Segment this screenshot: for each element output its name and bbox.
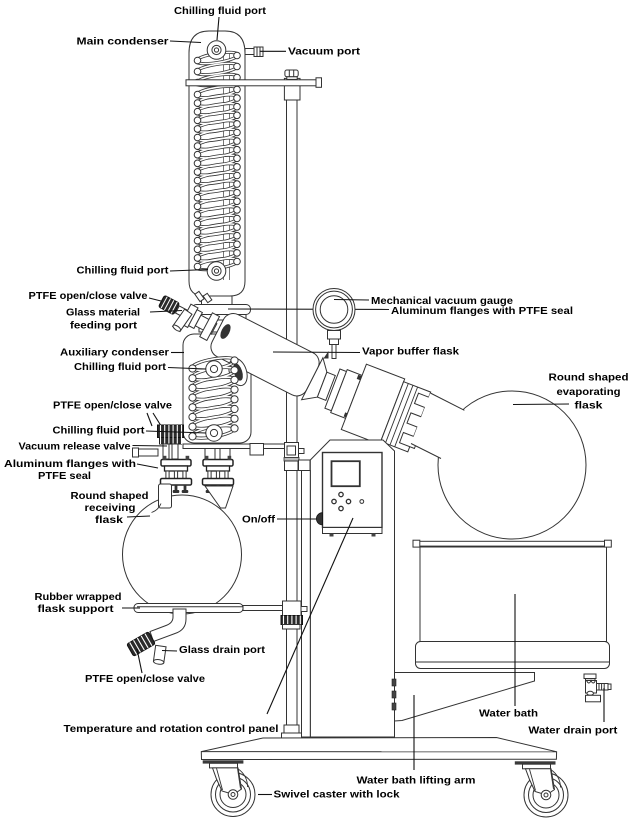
svg-text:PTFE open/close valve: PTFE open/close valve — [85, 674, 205, 685]
svg-text:Aluminum flanges with: Aluminum flanges with — [4, 459, 136, 470]
svg-text:Chilling fluid port: Chilling fluid port — [77, 266, 170, 277]
svg-text:Auxiliary condenser: Auxiliary condenser — [60, 348, 169, 359]
svg-text:PTFE open/close valve: PTFE open/close valve — [29, 291, 148, 302]
svg-text:Chilling fluid port: Chilling fluid port — [174, 6, 267, 17]
svg-text:Main condenser: Main condenser — [77, 37, 169, 48]
svg-text:Glass material: Glass material — [66, 308, 140, 319]
svg-text:Water bath lifting arm: Water bath lifting arm — [357, 776, 476, 787]
svg-text:Swivel caster with lock: Swivel caster with lock — [274, 790, 400, 801]
svg-text:Rubber wrapped: Rubber wrapped — [35, 592, 122, 603]
svg-text:Vapor buffer flask: Vapor buffer flask — [362, 347, 459, 358]
svg-text:Aluminum flanges with PTFE sea: Aluminum flanges with PTFE seal — [391, 306, 573, 317]
svg-text:evaporating: evaporating — [557, 387, 621, 398]
svg-text:flask: flask — [575, 401, 603, 412]
svg-text:Chilling fluid port: Chilling fluid port — [53, 426, 146, 437]
svg-text:PTFE open/close valve: PTFE open/close valve — [53, 401, 172, 412]
svg-text:flask support: flask support — [38, 604, 115, 615]
svg-text:Water drain port: Water drain port — [528, 726, 618, 737]
svg-text:feeding port: feeding port — [70, 321, 138, 332]
svg-text:Chilling fluid port: Chilling fluid port — [74, 362, 167, 373]
svg-text:Vacuum port: Vacuum port — [288, 47, 361, 58]
svg-text:flask: flask — [95, 515, 123, 526]
svg-text:receiving: receiving — [85, 503, 136, 514]
svg-text:Temperature and rotation contr: Temperature and rotation control panel — [64, 724, 279, 735]
svg-text:On/off: On/off — [242, 515, 276, 526]
svg-text:Water bath: Water bath — [479, 709, 538, 720]
svg-text:Glass drain port: Glass drain port — [179, 645, 266, 656]
svg-text:PTFE seal: PTFE seal — [38, 471, 91, 482]
svg-text:Round shaped: Round shaped — [549, 373, 629, 384]
svg-text:Round shaped: Round shaped — [71, 491, 149, 502]
svg-text:Vacuum release valve: Vacuum release valve — [19, 442, 131, 453]
